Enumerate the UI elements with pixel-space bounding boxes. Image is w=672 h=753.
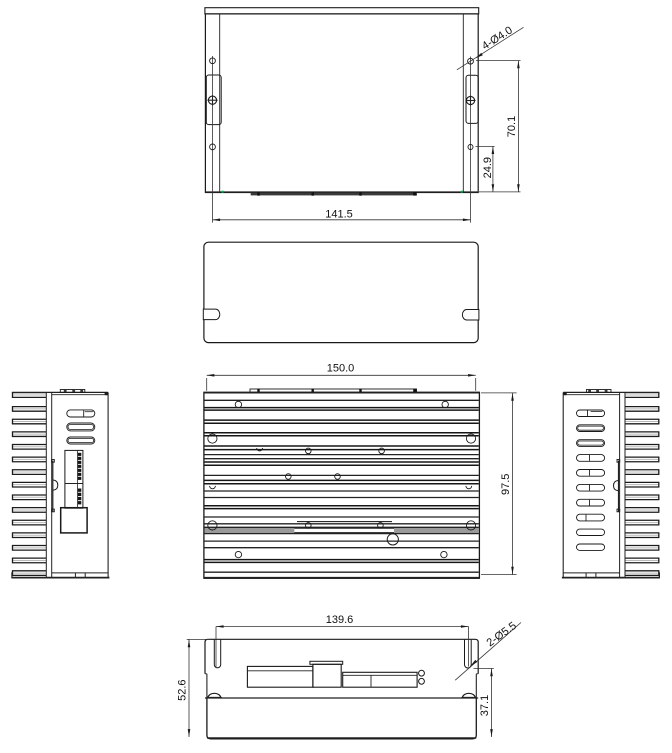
svg-text:97.5: 97.5	[500, 474, 512, 495]
svg-text:139.6: 139.6	[326, 614, 354, 626]
svg-text:150.0: 150.0	[327, 363, 355, 375]
svg-text:37.1: 37.1	[479, 695, 491, 716]
svg-text:24.9: 24.9	[482, 157, 494, 178]
svg-text:70.1: 70.1	[506, 116, 518, 137]
svg-text:141.5: 141.5	[325, 208, 353, 220]
svg-text:52.6: 52.6	[176, 679, 188, 700]
